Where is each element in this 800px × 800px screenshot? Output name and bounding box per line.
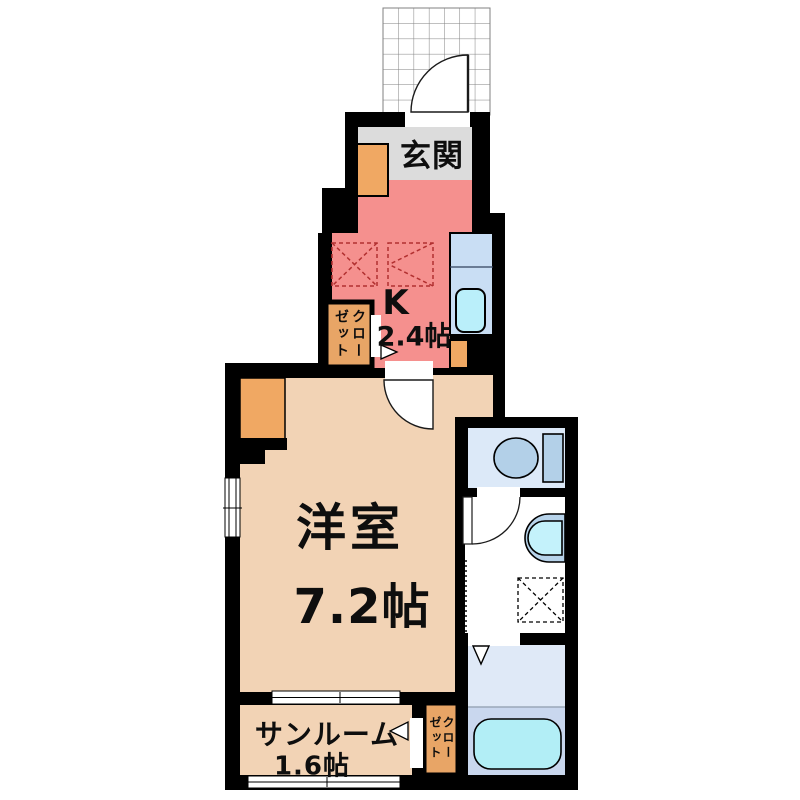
washbasin [525, 514, 565, 562]
sunroom-sliding-window [272, 691, 400, 704]
kitchen-sink [456, 289, 485, 332]
toilet [494, 434, 563, 482]
kitchen-size-label: 2.4帖 [377, 315, 452, 354]
bathtub [474, 719, 561, 769]
sunroom-closet-opening [410, 718, 423, 768]
sunroom-closet-label: クローゼット [428, 716, 454, 762]
kitchen-closet-label: クローゼット [332, 309, 366, 361]
floor-plan-drawing [0, 0, 800, 800]
kitchen-side-cabinet [450, 340, 468, 368]
entrance-doorway [405, 110, 470, 129]
kitchen-room-doorway [385, 361, 433, 382]
room-corner-cabinet [240, 378, 285, 440]
left-wall-window [223, 478, 242, 537]
genkan-label: 玄関 [400, 131, 464, 176]
bathroom-doorway [468, 633, 520, 646]
western-room-label: 洋室 [296, 488, 404, 560]
washroom-doorway [477, 487, 520, 498]
western-room-size-label: 7.2帖 [293, 567, 430, 637]
sunroom-size-label: 1.6帖 [274, 746, 350, 783]
floor-plan: 玄関 K 2.4帖 洋室 7.2帖 サンルーム 1.6帖 クローゼット クローゼ… [0, 0, 800, 800]
shoe-cabinet [357, 144, 388, 196]
